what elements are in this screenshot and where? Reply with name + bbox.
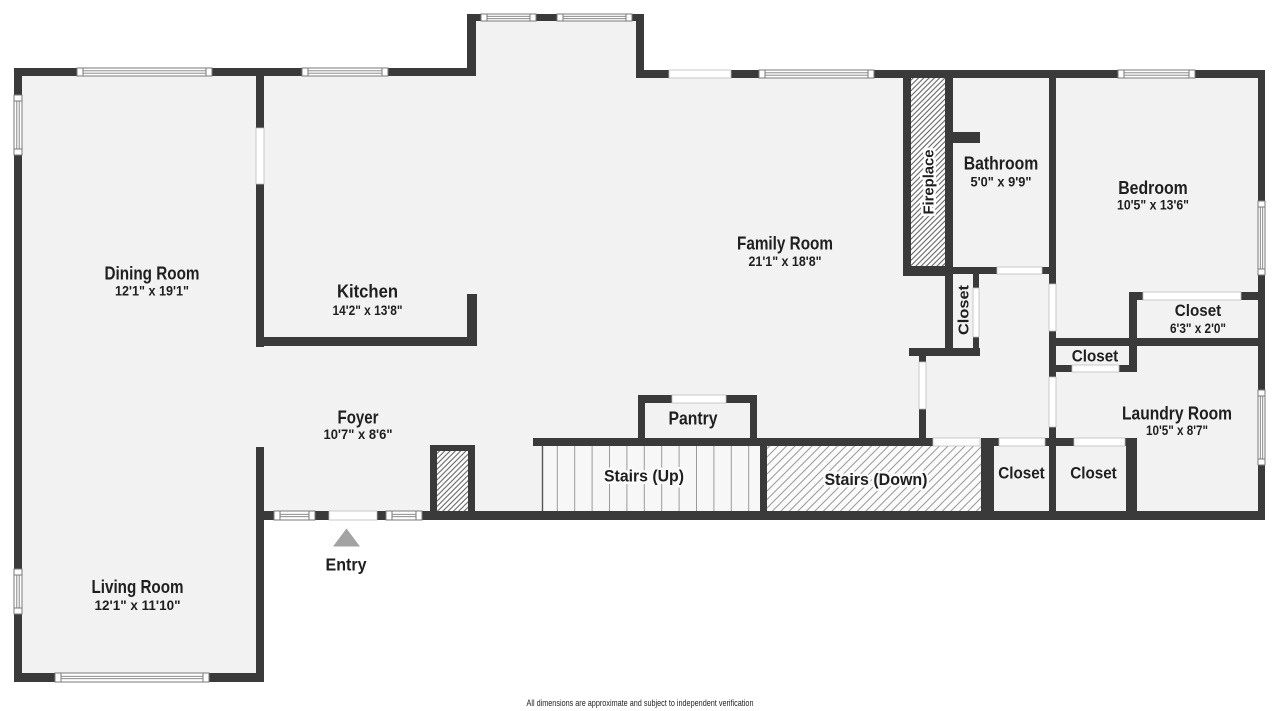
svg-text:Closet: Closet	[998, 464, 1045, 483]
svg-text:Fireplace: Fireplace	[922, 150, 938, 215]
svg-text:12'1" x 19'1": 12'1" x 19'1"	[115, 284, 189, 299]
svg-text:12'1" x 11'10": 12'1" x 11'10"	[95, 598, 181, 613]
svg-text:10'5" x 8'7": 10'5" x 8'7"	[1146, 423, 1208, 438]
svg-text:Living Room: Living Room	[92, 577, 184, 597]
svg-text:Entry: Entry	[326, 555, 367, 575]
svg-text:10'7" x 8'6": 10'7" x 8'6"	[324, 427, 393, 442]
svg-text:Family Room: Family Room	[737, 234, 833, 254]
svg-text:14'2" x 13'8": 14'2" x 13'8"	[333, 303, 403, 318]
svg-text:Bathroom: Bathroom	[964, 154, 1039, 174]
svg-text:Closet: Closet	[957, 285, 973, 335]
svg-text:Foyer: Foyer	[338, 408, 379, 428]
svg-text:Closet: Closet	[1175, 301, 1222, 320]
svg-text:6'3" x 2'0": 6'3" x 2'0"	[1170, 321, 1226, 336]
svg-text:21'1" x 18'8": 21'1" x 18'8"	[749, 254, 822, 269]
svg-text:Stairs (Up): Stairs (Up)	[604, 467, 684, 486]
svg-text:Dining Room: Dining Room	[105, 264, 200, 284]
svg-text:Closet: Closet	[1072, 347, 1119, 366]
svg-text:Pantry: Pantry	[669, 408, 718, 428]
svg-text:Closet: Closet	[1070, 464, 1117, 483]
svg-text:10'5" x 13'6": 10'5" x 13'6"	[1117, 198, 1189, 213]
svg-text:Laundry Room: Laundry Room	[1122, 404, 1232, 424]
svg-text:Kitchen: Kitchen	[337, 282, 398, 302]
svg-text:All dimensions are approximate: All dimensions are approximate and subje…	[527, 698, 754, 708]
svg-text:Stairs (Down): Stairs (Down)	[825, 470, 928, 489]
svg-text:Bedroom: Bedroom	[1118, 178, 1188, 198]
svg-text:5'0" x 9'9": 5'0" x 9'9"	[971, 175, 1032, 190]
